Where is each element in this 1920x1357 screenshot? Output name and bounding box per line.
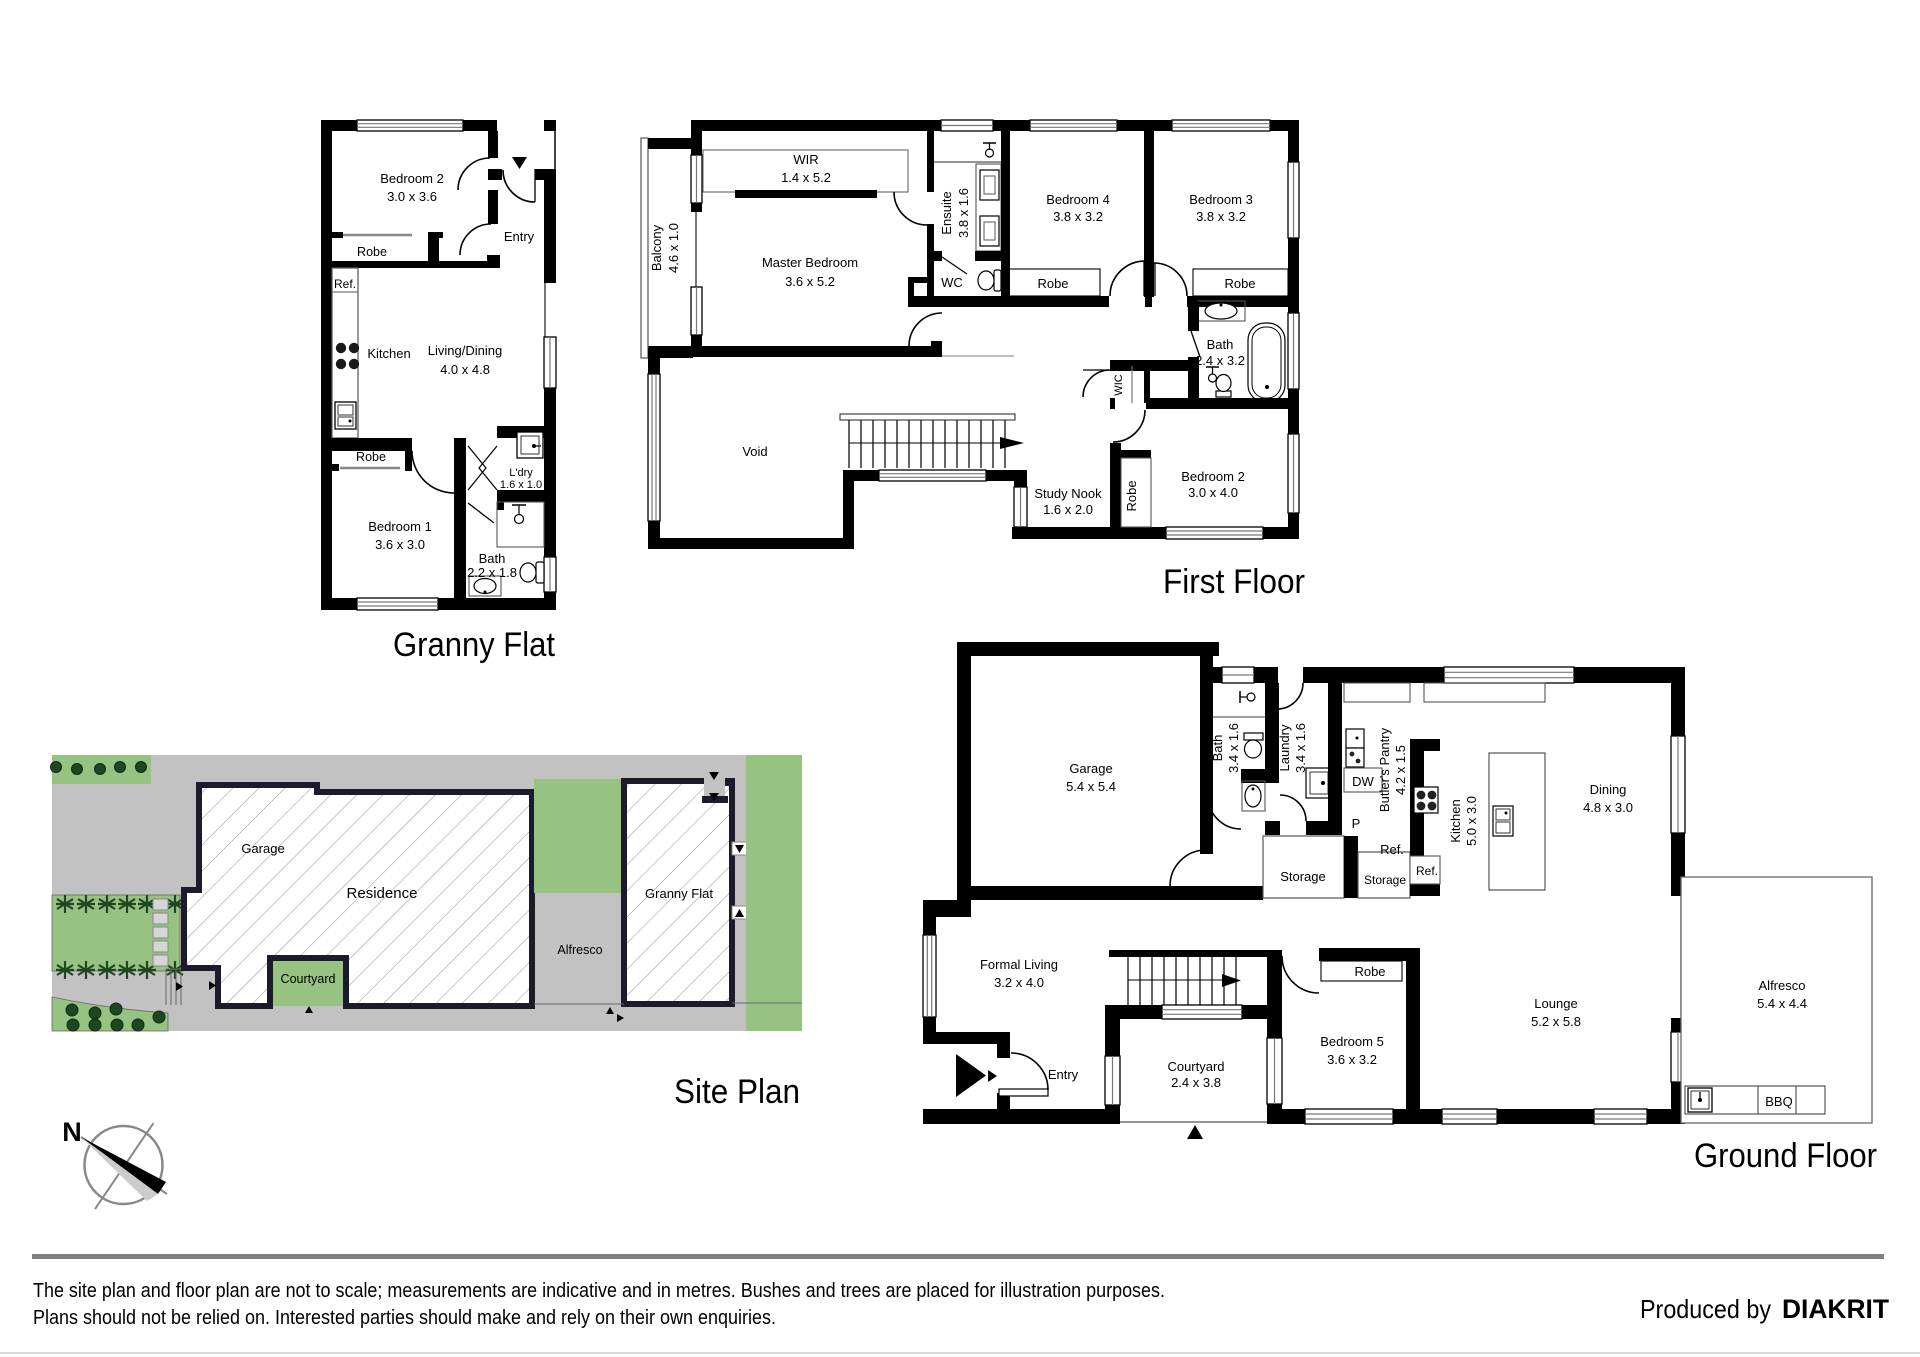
svg-text:3.6 x 3.0: 3.6 x 3.0 bbox=[375, 537, 425, 552]
svg-text:Ref.: Ref. bbox=[334, 277, 356, 291]
svg-text:N: N bbox=[62, 1117, 82, 1147]
svg-text:Bedroom 1: Bedroom 1 bbox=[368, 519, 432, 534]
svg-text:Storage: Storage bbox=[1364, 873, 1406, 887]
svg-text:Bedroom 2: Bedroom 2 bbox=[380, 171, 444, 186]
svg-text:1.6 x 2.0: 1.6 x 2.0 bbox=[1043, 502, 1093, 517]
svg-text:BBQ: BBQ bbox=[1765, 1094, 1792, 1109]
svg-text:4.6 x 1.0: 4.6 x 1.0 bbox=[666, 223, 681, 273]
svg-text:WIR: WIR bbox=[793, 152, 818, 167]
svg-text:Plans should not be relied on.: Plans should not be relied on. Intereste… bbox=[33, 1307, 776, 1329]
svg-text:5.4 x 4.4: 5.4 x 4.4 bbox=[1757, 996, 1807, 1011]
svg-text:4.0 x 4.8: 4.0 x 4.8 bbox=[440, 362, 490, 377]
svg-text:Robe: Robe bbox=[356, 450, 386, 464]
svg-text:Living/Dining: Living/Dining bbox=[428, 343, 502, 358]
svg-text:Bath: Bath bbox=[1207, 337, 1234, 352]
svg-text:Robe: Robe bbox=[1124, 480, 1139, 511]
svg-text:4.2 x 1.5: 4.2 x 1.5 bbox=[1393, 745, 1408, 795]
svg-text:L'dry: L'dry bbox=[509, 467, 533, 479]
svg-text:Robe: Robe bbox=[357, 245, 387, 259]
svg-text:Dining: Dining bbox=[1590, 782, 1627, 797]
svg-text:Laundry: Laundry bbox=[1277, 724, 1292, 771]
svg-text:Master Bedroom: Master Bedroom bbox=[762, 255, 858, 270]
svg-text:Balcony: Balcony bbox=[649, 224, 664, 271]
svg-text:Robe: Robe bbox=[1037, 276, 1068, 291]
svg-text:Formal Living: Formal Living bbox=[980, 957, 1058, 972]
svg-text:3.2 x 4.0: 3.2 x 4.0 bbox=[994, 975, 1044, 990]
svg-text:Robe: Robe bbox=[1224, 276, 1255, 291]
svg-text:2.4 x 3.2: 2.4 x 3.2 bbox=[1195, 353, 1245, 368]
svg-text:2.4 x 3.8: 2.4 x 3.8 bbox=[1171, 1075, 1221, 1090]
svg-text:Entry: Entry bbox=[1048, 1067, 1079, 1082]
svg-text:3.6 x 5.2: 3.6 x 5.2 bbox=[785, 274, 835, 289]
svg-text:3.4 x 1.6: 3.4 x 1.6 bbox=[1293, 723, 1308, 773]
svg-text:Kitchen: Kitchen bbox=[1448, 799, 1463, 842]
svg-text:Bath: Bath bbox=[1210, 735, 1225, 762]
svg-text:Bedroom 2: Bedroom 2 bbox=[1181, 469, 1245, 484]
svg-text:3.8 x 3.2: 3.8 x 3.2 bbox=[1196, 209, 1246, 224]
svg-text:Void: Void bbox=[742, 444, 767, 459]
svg-text:3.0 x 4.0: 3.0 x 4.0 bbox=[1188, 485, 1238, 500]
svg-text:5.4 x 5.4: 5.4 x 5.4 bbox=[1066, 779, 1116, 794]
svg-text:Garage: Garage bbox=[1069, 761, 1112, 776]
svg-text:3.8 x 3.2: 3.8 x 3.2 bbox=[1053, 209, 1103, 224]
svg-text:5.0 x 3.0: 5.0 x 3.0 bbox=[1464, 796, 1479, 846]
svg-text:Produced by: Produced by bbox=[1640, 1294, 1771, 1324]
svg-text:P: P bbox=[1352, 816, 1361, 831]
svg-text:Lounge: Lounge bbox=[1534, 996, 1577, 1011]
svg-text:Study Nook: Study Nook bbox=[1034, 486, 1102, 501]
svg-text:Site Plan: Site Plan bbox=[674, 1073, 800, 1111]
svg-text:5.2 x 5.8: 5.2 x 5.8 bbox=[1531, 1014, 1581, 1029]
svg-text:The site plan and floor plan a: The site plan and floor plan are not to … bbox=[33, 1280, 1165, 1302]
svg-text:3.8 x 1.6: 3.8 x 1.6 bbox=[956, 188, 971, 238]
svg-text:Entry: Entry bbox=[504, 229, 535, 244]
svg-text:DW: DW bbox=[1352, 774, 1374, 789]
svg-text:Courtyard: Courtyard bbox=[281, 972, 336, 986]
svg-text:3.6 x 3.2: 3.6 x 3.2 bbox=[1327, 1052, 1377, 1067]
svg-text:Courtyard: Courtyard bbox=[1167, 1059, 1224, 1074]
svg-text:4.8 x 3.0: 4.8 x 3.0 bbox=[1583, 800, 1633, 815]
svg-text:Robe: Robe bbox=[1354, 964, 1385, 979]
svg-text:2.2 x 1.8: 2.2 x 1.8 bbox=[467, 565, 517, 580]
svg-text:1.4 x 5.2: 1.4 x 5.2 bbox=[781, 170, 831, 185]
svg-text:Ground Floor: Ground Floor bbox=[1694, 1137, 1877, 1175]
svg-text:Butler's Pantry: Butler's Pantry bbox=[1377, 727, 1392, 812]
svg-text:Bedroom 5: Bedroom 5 bbox=[1320, 1034, 1384, 1049]
svg-text:WC: WC bbox=[941, 275, 963, 290]
svg-text:3.4 x 1.6: 3.4 x 1.6 bbox=[1226, 723, 1241, 773]
svg-text:Alfresco: Alfresco bbox=[557, 943, 602, 957]
svg-text:Bath: Bath bbox=[479, 551, 506, 566]
svg-text:Bedroom 3: Bedroom 3 bbox=[1189, 192, 1253, 207]
svg-text:Ref.: Ref. bbox=[1380, 842, 1404, 857]
svg-text:Kitchen: Kitchen bbox=[367, 346, 410, 361]
svg-text:Ref.: Ref. bbox=[1416, 864, 1438, 878]
svg-text:1.6 x 1.0: 1.6 x 1.0 bbox=[500, 479, 542, 491]
svg-text:Ensuite: Ensuite bbox=[939, 191, 954, 234]
svg-text:DIAKRIT: DIAKRIT bbox=[1782, 1294, 1889, 1324]
svg-text:Alfresco: Alfresco bbox=[1759, 978, 1806, 993]
svg-text:Bedroom 4: Bedroom 4 bbox=[1046, 192, 1110, 207]
svg-text:3.0 x 3.6: 3.0 x 3.6 bbox=[387, 189, 437, 204]
svg-text:Storage: Storage bbox=[1280, 869, 1326, 884]
svg-text:Residence: Residence bbox=[347, 885, 418, 902]
svg-text:First Floor: First Floor bbox=[1163, 563, 1305, 601]
svg-text:Granny Flat: Granny Flat bbox=[645, 886, 713, 901]
svg-text:Granny Flat: Granny Flat bbox=[393, 626, 555, 664]
svg-text:Garage: Garage bbox=[241, 841, 284, 856]
svg-text:WIC: WIC bbox=[1113, 374, 1125, 395]
